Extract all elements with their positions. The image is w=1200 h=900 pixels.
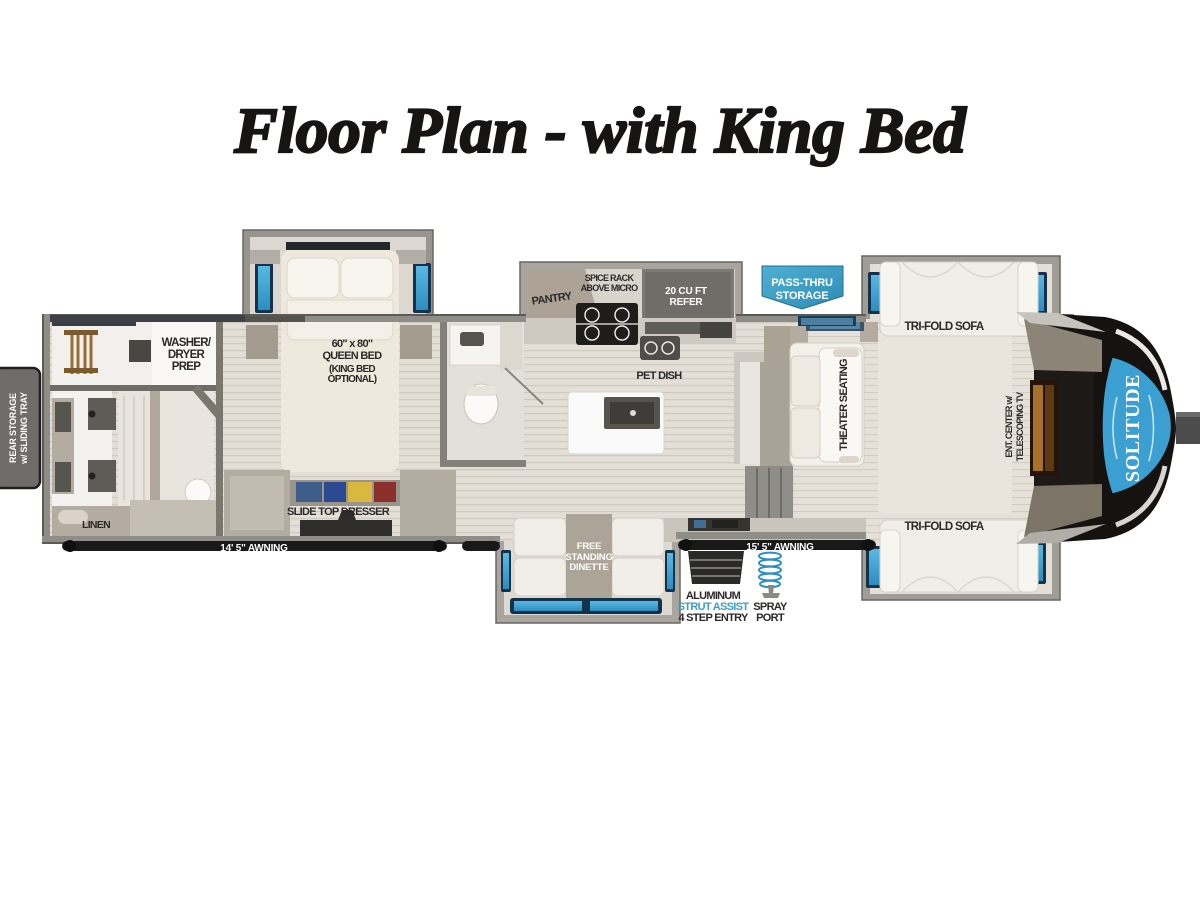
svg-text:PASS-THRU: PASS-THRU [771,277,833,289]
svg-text:PORT: PORT [756,612,785,624]
svg-text:LINEN: LINEN [82,519,110,531]
svg-text:SOLITUDE: SOLITUDE [1122,374,1144,482]
svg-text:w/ SLIDING TRAY: w/ SLIDING TRAY [19,392,29,465]
svg-text:SLIDE TOP DRESSER: SLIDE TOP DRESSER [287,506,390,518]
svg-text:Floor Plan - with King Bed: Floor Plan - with King Bed [233,95,967,167]
svg-text:PREP: PREP [172,361,202,373]
svg-text:QUEEN BED: QUEEN BED [322,350,382,362]
svg-text:STORAGE: STORAGE [776,290,829,302]
svg-text:TRI-FOLD SOFA: TRI-FOLD SOFA [904,521,983,533]
svg-text:ENT. CENTER w/: ENT. CENTER w/ [1004,395,1014,457]
svg-text:15' 5" AWNING: 15' 5" AWNING [746,542,814,553]
svg-text:4 STEP ENTRY: 4 STEP ENTRY [678,612,749,624]
svg-text:20 CU FT: 20 CU FT [665,286,707,297]
svg-text:ABOVE MICRO: ABOVE MICRO [581,283,639,293]
svg-text:WASHER/: WASHER/ [162,337,212,349]
svg-text:60" x 80": 60" x 80" [332,338,373,350]
svg-text:PET DISH: PET DISH [636,370,682,382]
svg-text:FREE: FREE [577,541,602,552]
svg-text:THEATER SEATING: THEATER SEATING [838,359,850,451]
svg-text:OPTIONAL): OPTIONAL) [328,374,377,385]
svg-text:TELESCOPING TV: TELESCOPING TV [1015,392,1025,461]
svg-text:SPICE RACK: SPICE RACK [585,273,635,283]
svg-text:14' 5" AWNING: 14' 5" AWNING [220,543,288,554]
svg-text:REAR STORAGE: REAR STORAGE [8,393,18,463]
svg-text:REFER: REFER [670,297,704,308]
svg-text:TRI-FOLD SOFA: TRI-FOLD SOFA [904,321,983,333]
svg-text:DRYER: DRYER [168,349,206,361]
svg-text:DINETTE: DINETTE [569,562,608,573]
